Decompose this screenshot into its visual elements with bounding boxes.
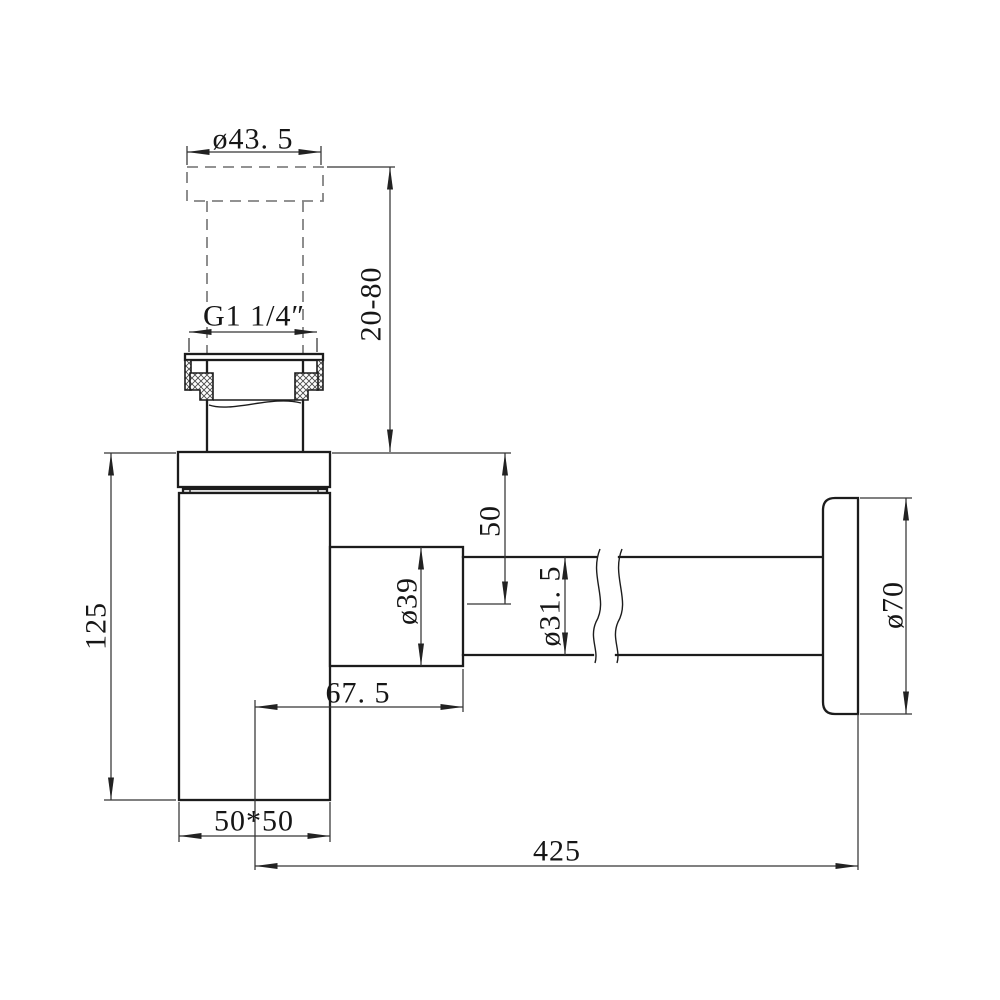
label-thread-size: G1 1/4″ [203,300,305,333]
trap-body-cap [178,452,330,487]
label-outlet-length: 67. 5 [326,677,391,710]
dim-inlet-to-outlet-center: 50 [467,453,511,604]
dim-body-section: 50*50 [179,802,330,842]
dim-cap-diameter: ø43. 5 [187,123,321,166]
dim-outlet-pipe-diameter: ø31. 5 [534,557,567,655]
label-body-height: 125 [80,602,113,650]
technical-drawing-canvas: ø43. 5 G1 1/4″ 20-80 125 50 ø39 ø31. 5 [0,0,1000,1000]
dim-body-height: 125 [80,453,177,800]
slip-nut-rim [185,354,323,360]
trap-body [178,452,330,800]
label-wall-flange-diameter: ø70 [877,581,910,629]
slip-nut-section [185,354,323,400]
bottle-trap-drawing: ø43. 5 G1 1/4″ 20-80 125 50 ø39 ø31. 5 [0,0,1000,1000]
dim-thread-size: G1 1/4″ [189,300,317,353]
label-outlet-nut-diameter: ø39 [391,577,424,625]
dim-inlet-height-range: 20-80 [327,167,511,453]
tube-break-wave [209,401,301,407]
label-inlet-to-outlet-center: 50 [474,505,507,537]
outlet-pipe [463,549,823,663]
label-body-section: 50*50 [214,805,294,838]
dim-wall-flange-diameter: ø70 [860,498,912,714]
slip-nut-left-jaw [190,373,213,400]
inlet-tailpiece-tube [207,360,303,452]
label-inlet-height-range: 20-80 [355,267,388,342]
pipe-break-wave-left [593,549,600,663]
wall-flange [823,498,858,714]
label-cap-diameter: ø43. 5 [213,123,294,156]
label-outlet-pipe-diameter: ø31. 5 [534,566,567,647]
slip-nut-right-jaw [295,373,318,400]
pipe-break-wave-right [615,549,622,663]
label-overall-length: 425 [533,835,581,868]
dim-overall-length: 425 [255,714,858,870]
